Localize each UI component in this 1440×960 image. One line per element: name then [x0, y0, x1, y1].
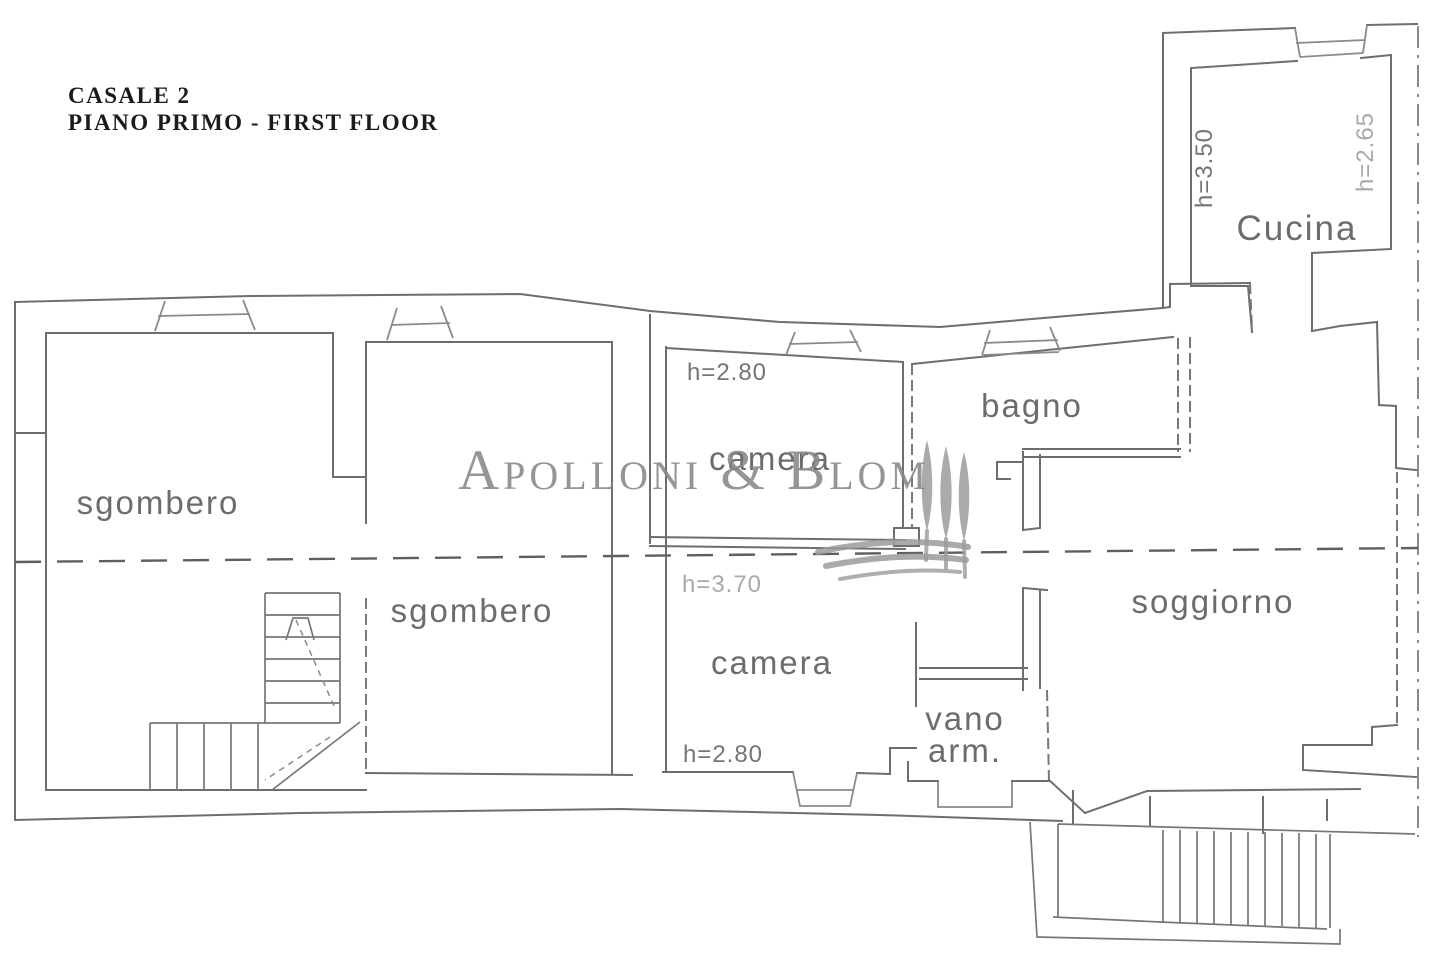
height-label-cucina-right: h=2.65 [1352, 112, 1379, 192]
height-label-cucina-left: h=3.50 [1191, 128, 1218, 208]
page-title: CASALE 2 [68, 82, 439, 109]
room-label-sgombero-lower: sgombero [391, 592, 554, 629]
watermark-brand: Apolloni & Blom [458, 438, 908, 503]
height-label-camera-upper: h=2.80 [687, 359, 767, 386]
height-label-section: h=3.70 [682, 571, 762, 598]
room-label-bagno: bagno [981, 387, 1083, 424]
title-block: CASALE 2 PIANO PRIMO - FIRST FLOOR [68, 82, 439, 136]
room-label-vano-arm-line2: arm. [928, 732, 1002, 769]
room-label-sgombero-upper: sgombero [77, 484, 240, 521]
sgombero-walls [46, 333, 632, 790]
room-label-cucina: Cucina [1237, 209, 1358, 248]
page-subtitle: PIANO PRIMO - FIRST FLOOR [68, 109, 439, 136]
room-label-soggiorno: soggiorno [1132, 583, 1295, 620]
bagno-walls [912, 337, 1190, 530]
floor-plan-page: sgombero sgombero camera camera bagno so… [0, 0, 1440, 960]
bagno-pillar [1023, 452, 1040, 530]
room-label-camera-lower: camera [711, 644, 833, 681]
section-dashed-line [15, 548, 1418, 562]
external-staircase [1030, 822, 1415, 944]
internal-staircase [150, 593, 360, 790]
height-label-camera-lower: h=2.80 [683, 741, 763, 768]
soggiorno-walls [1073, 472, 1416, 833]
